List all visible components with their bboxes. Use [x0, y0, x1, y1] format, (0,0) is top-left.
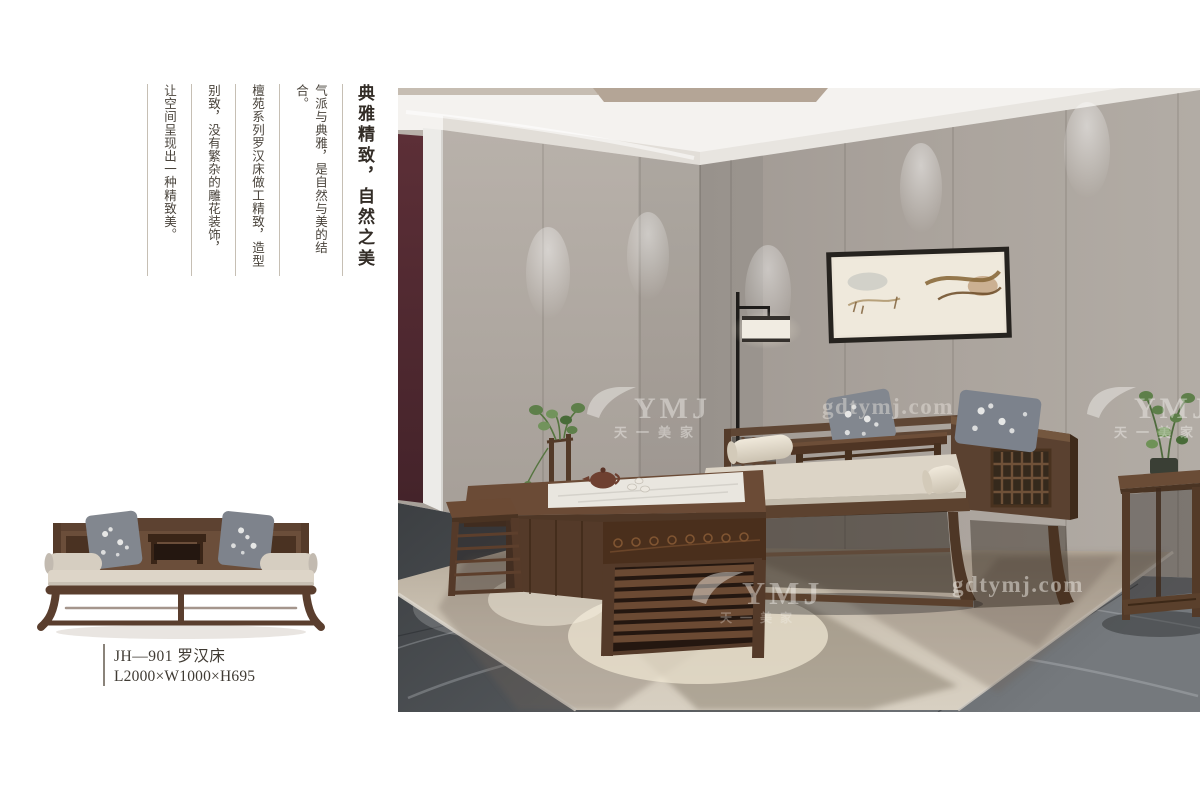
lamp-shade: [742, 317, 790, 342]
svg-text:YMJ: YMJ: [742, 575, 823, 611]
svg-text:YMJ: YMJ: [1134, 392, 1200, 425]
thumb-base-frame: [41, 590, 321, 627]
daybed-pillow-right: [954, 389, 1042, 453]
intro-column-3: 别致，没有繁杂的雕花装饰，: [192, 84, 236, 276]
thumb-kang-table: [148, 534, 206, 564]
stool: [446, 498, 523, 596]
product-model: JH—901 罗汉床: [114, 644, 255, 666]
svg-text:天一美家: 天一美家: [1114, 425, 1200, 440]
svg-text:天一美家: 天一美家: [720, 610, 800, 625]
wall-artwork: [829, 249, 1010, 341]
intro-column-4: 让空间呈现出一种精致美。: [147, 84, 192, 276]
svg-text:天一美家: 天一美家: [614, 425, 702, 440]
product-thumbnail: [36, 496, 326, 646]
watermark-domain-top: gdtymj.com: [822, 394, 954, 419]
intro-text-block: 典雅精致，自然之美 气派与典雅，是自然与美的结合。 檀苑系列罗汉床做工精致，造型…: [147, 84, 386, 276]
page-title: 典雅精致，自然之美: [343, 84, 386, 276]
intro-column-1: 气派与典雅，是自然与美的结合。: [280, 84, 343, 276]
accent-wall-panel: [398, 128, 443, 512]
watermark-domain-bottom: gdtymj.com: [952, 572, 1084, 597]
room-scene: YMJ 天一美家 YMJ 天一美家 gdtymj.com YMJ 天一美家 gd…: [398, 88, 1200, 712]
intro-column-2: 檀苑系列罗汉床做工精致，造型: [236, 84, 280, 276]
svg-text:YMJ: YMJ: [634, 392, 711, 425]
product-dimensions: L2000×W1000×H695: [114, 668, 255, 686]
daybed-thumbnail-graphic: [36, 496, 326, 646]
catalog-page: 典雅精致，自然之美 气派与典雅，是自然与美的结合。 檀苑系列罗汉床做工精致，造型…: [0, 0, 1200, 800]
thumb-seat-edge: [48, 582, 314, 586]
product-caption: JH—901 罗汉床 L2000×W1000×H695: [103, 644, 255, 686]
room-photo: YMJ 天一美家 YMJ 天一美家 gdtymj.com YMJ 天一美家 gd…: [398, 88, 1200, 712]
thumb-shadow: [56, 625, 306, 639]
